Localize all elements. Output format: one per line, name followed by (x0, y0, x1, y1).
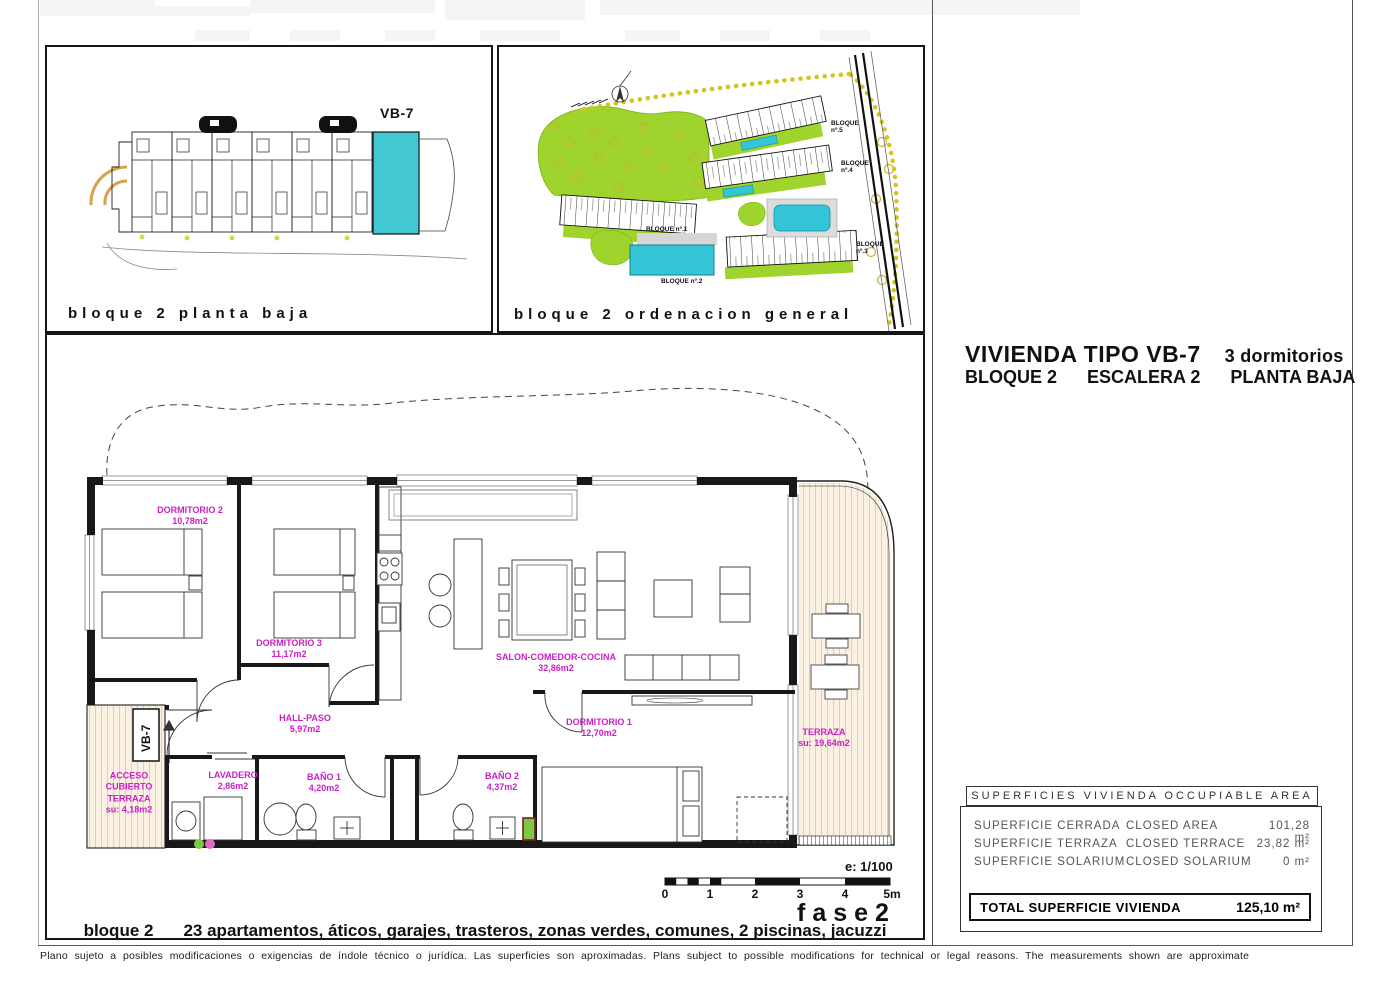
scale-tick: 0 (662, 887, 669, 901)
bloque-3-label: BLOQUE nº.3 (856, 241, 890, 256)
unit-tag: VB-7 (139, 724, 153, 752)
furniture (102, 487, 787, 842)
scale-label: e: 1/100 (845, 859, 893, 874)
title-escalera: ESCALERA 2 (1087, 367, 1200, 388)
dwelling-type-title: VIVIENDA TIPO VB-7 (965, 341, 1201, 368)
bloque-5-label: BLOQUE nº.5 (831, 120, 865, 135)
bloque-3 (723, 230, 858, 279)
floor-plan-panel: VB-7 (45, 333, 925, 940)
block-plan-caption: bloque 2 planta baja (68, 305, 312, 322)
frame-left (38, 0, 39, 945)
title-bloque: BLOQUE 2 (965, 367, 1057, 388)
title-block-line2: BLOQUE 2 ESCALERA 2 PLANTA BAJA (965, 367, 1355, 388)
vb7-highlight (373, 132, 419, 234)
disclaimer-text: Plano sujeto a posibles modificaciones o… (40, 950, 1380, 962)
block-plan-panel: VB-7 bloque 2 planta baja (45, 45, 493, 333)
bloque-1-label: BLOQUE nº.1 (646, 226, 687, 233)
room-label-dormitorio1: DORMITORIO 112,70m2 (566, 717, 632, 740)
room-label-lavadero: LAVADERO2,86m2 (208, 770, 257, 793)
title-planta: PLANTA BAJA (1230, 367, 1355, 388)
room-label-bano2: BAÑO 24,37m2 (485, 771, 519, 794)
scale-tick: 2 (752, 887, 759, 901)
bloque-4-label: BLOQUE nº.4 (841, 160, 875, 175)
project-caption: bloque 223 apartamentos, áticos, garajes… (47, 921, 923, 941)
site-plan-panel: BLOQUE nº.1 BLOQUE nº.2 BLOQUE nº.3 BLOQ… (497, 45, 925, 333)
title-block: VIVIENDA TIPO VB-7 3 dormitorios (965, 341, 1344, 368)
room-label-dormitorio3: DORMITORIO 311,17m2 (256, 638, 322, 661)
mini-unit-label: VB-7 (380, 105, 414, 121)
marker-pink (205, 839, 215, 849)
plan-sheet: { "colors": { "highlight_cyan": "#41c8d2… (0, 0, 1400, 995)
floor-plan-drawing: VB-7 (47, 335, 923, 938)
pool (774, 205, 830, 231)
surface-total-row: TOTAL SUPERFICIE VIVIENDA 125,10 m² (969, 893, 1311, 921)
scale-bar (665, 878, 890, 885)
room-label-hall: HALL-PASO5,97m2 (279, 713, 331, 736)
bloque-2-pool (630, 245, 714, 275)
bedrooms-subtitle: 3 dormitorios (1225, 346, 1344, 367)
surface-row-solarium: SUPERFICIE SOLARIUM CLOSED SOLARIUM 0 m² (974, 856, 1310, 868)
surfaces-table: SUPERFICIE CERRADA CLOSED AREA 101,28 m²… (960, 806, 1322, 932)
surfaces-table-header: SUPERFICIES VIVIENDA OCCUPIABLE AREA (966, 786, 1318, 806)
room-label-acceso: ACCESO CUBIERTO TERRAZAsu: 4,18m2 (98, 771, 160, 816)
site-plan-drawing (499, 47, 923, 331)
block-plan-drawing (47, 47, 491, 331)
room-label-dormitorio2: DORMITORIO 210,78m2 (157, 505, 223, 528)
room-label-bano1: BAÑO 14,20m2 (307, 772, 341, 795)
room-label-salon: SALON-COMEDOR-COCINA32,86m2 (496, 652, 616, 675)
bloque-2-label: BLOQUE nº.2 (661, 278, 702, 285)
frame-middle (932, 0, 933, 945)
road (849, 51, 911, 331)
frame-bottom (38, 945, 1353, 946)
marker-green (194, 839, 204, 849)
terrace (797, 481, 894, 845)
frame-right (1352, 0, 1353, 945)
site-plan-caption: bloque 2 ordenacion general (514, 306, 853, 323)
surface-row-terraza: SUPERFICIE TERRAZA CLOSED TERRACE 23,82 … (974, 838, 1310, 850)
scale-tick: 1 (707, 887, 714, 901)
room-label-terraza: TERRAZAsu: 19,64m2 (798, 727, 850, 750)
